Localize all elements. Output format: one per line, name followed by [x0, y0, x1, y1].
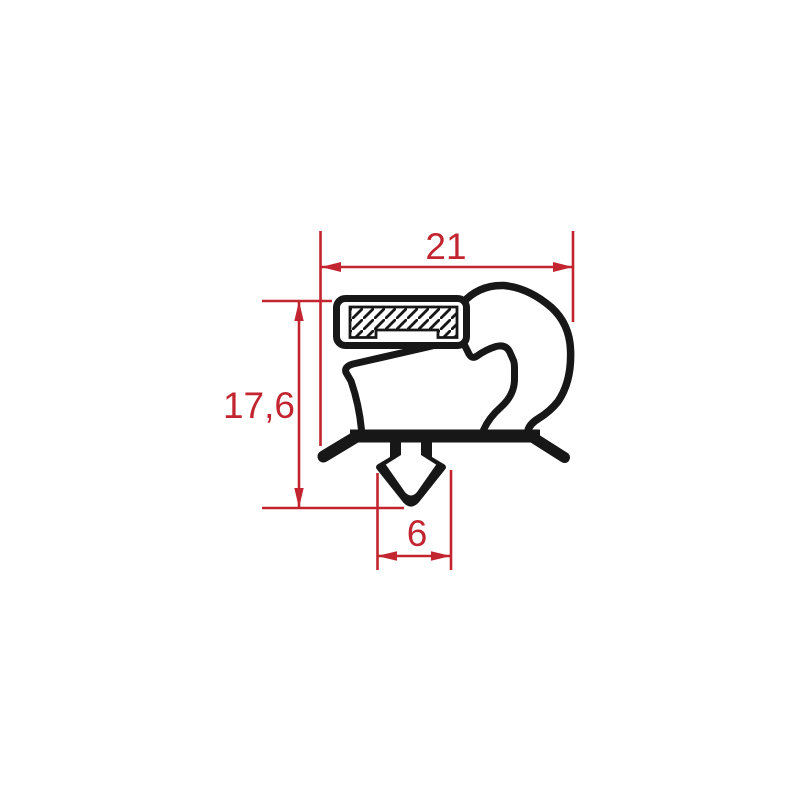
- dimension-annotations: 21 17,6 6: [223, 226, 573, 570]
- dimension-label-bottom-width: 6: [407, 513, 428, 554]
- gasket-profile: [324, 285, 571, 506]
- flex-membrane-left-wall: [346, 346, 432, 430]
- arrowhead-left-icon: [377, 551, 397, 560]
- left-foot: [324, 438, 356, 457]
- arrowhead-down-icon: [294, 488, 303, 508]
- right-foot: [533, 438, 565, 458]
- flex-membrane-peak: [464, 344, 515, 430]
- dimension-label-top-width: 21: [425, 226, 466, 267]
- technical-drawing-page: 21 17,6 6: [0, 0, 800, 800]
- arrowhead-right-icon: [553, 262, 573, 272]
- dimension-label-left-height: 17,6: [223, 385, 295, 426]
- arrowhead-up-icon: [294, 301, 303, 321]
- arrowhead-left-icon: [321, 262, 341, 272]
- gasket-dimension-drawing: 21 17,6 6: [0, 0, 800, 800]
- arrowhead-right-icon: [431, 551, 451, 560]
